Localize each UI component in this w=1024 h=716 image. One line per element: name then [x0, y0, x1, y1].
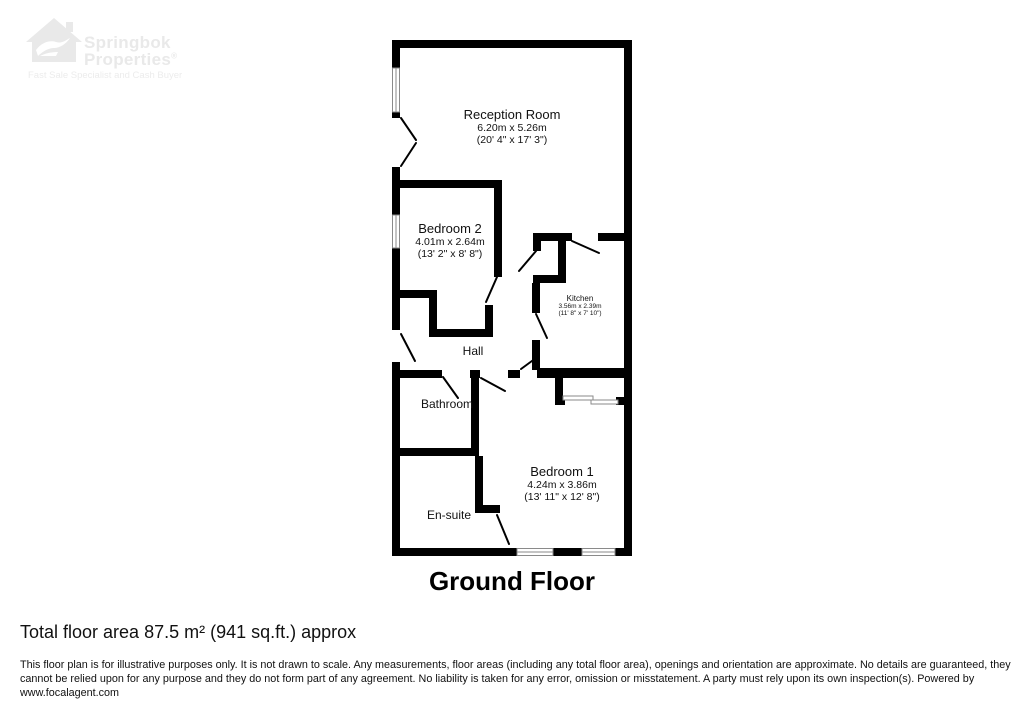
room-label-hall: Hall	[463, 344, 484, 358]
room-label-bedroom2: Bedroom 2 4.01m x 2.64m (13' 2" x 8' 8")	[415, 221, 484, 260]
sliding-door-icon	[563, 396, 618, 404]
room-dim-metric: 6.20m x 5.26m	[464, 122, 561, 134]
room-name: Bedroom 2	[415, 221, 484, 236]
kitchen-door-icon	[572, 241, 599, 253]
disclaimer-text: This floor plan is for illustrative purp…	[20, 658, 1016, 700]
room-label-reception: Reception Room 6.20m x 5.26m (20' 4" x 1…	[464, 107, 561, 146]
room-name: Kitchen	[558, 294, 601, 303]
bedroom1-door-icon	[481, 378, 505, 391]
bedroom2-door-icon	[486, 277, 497, 302]
bedroom1-window1-icon	[517, 549, 553, 556]
cupboard-door-icon	[519, 251, 536, 271]
floor-title: Ground Floor	[362, 566, 662, 597]
entrance-door-icon	[401, 334, 415, 361]
french-door-leaf-icon	[401, 118, 416, 140]
room-dim-imperial: (13' 2" x 8' 8")	[415, 248, 484, 260]
french-door-leaf-icon	[401, 143, 416, 166]
bedroom1-window2-icon	[582, 549, 615, 556]
room-name: Bedroom 1	[524, 464, 599, 479]
room-dim-imperial: (13' 11" x 12' 8")	[524, 491, 599, 503]
room-dim-metric: 3.56m x 2.39m	[558, 303, 601, 310]
room-label-bedroom1: Bedroom 1 4.24m x 3.86m (13' 11" x 12' 8…	[524, 464, 599, 503]
bathroom-door-icon	[443, 377, 458, 398]
reception-window-icon	[393, 68, 400, 112]
room-dim-imperial: (11' 8" x 7' 10")	[558, 310, 601, 317]
room-name: Reception Room	[464, 107, 561, 122]
room-label-ensuite: En-suite	[427, 508, 471, 522]
total-floor-area: Total floor area 87.5 m² (941 sq.ft.) ap…	[20, 622, 356, 643]
room-dim-metric: 4.24m x 3.86m	[524, 479, 599, 491]
bedroom2-window-icon	[393, 215, 400, 248]
room-label-bathroom: Bathroom	[421, 397, 473, 411]
ensuite-door-icon	[497, 515, 509, 544]
room-dim-imperial: (20' 4" x 17' 3")	[464, 134, 561, 146]
kitchen-west-door-icon	[536, 314, 547, 338]
room-dim-metric: 4.01m x 2.64m	[415, 236, 484, 248]
room-label-kitchen: Kitchen 3.56m x 2.39m (11' 8" x 7' 10")	[558, 294, 601, 317]
